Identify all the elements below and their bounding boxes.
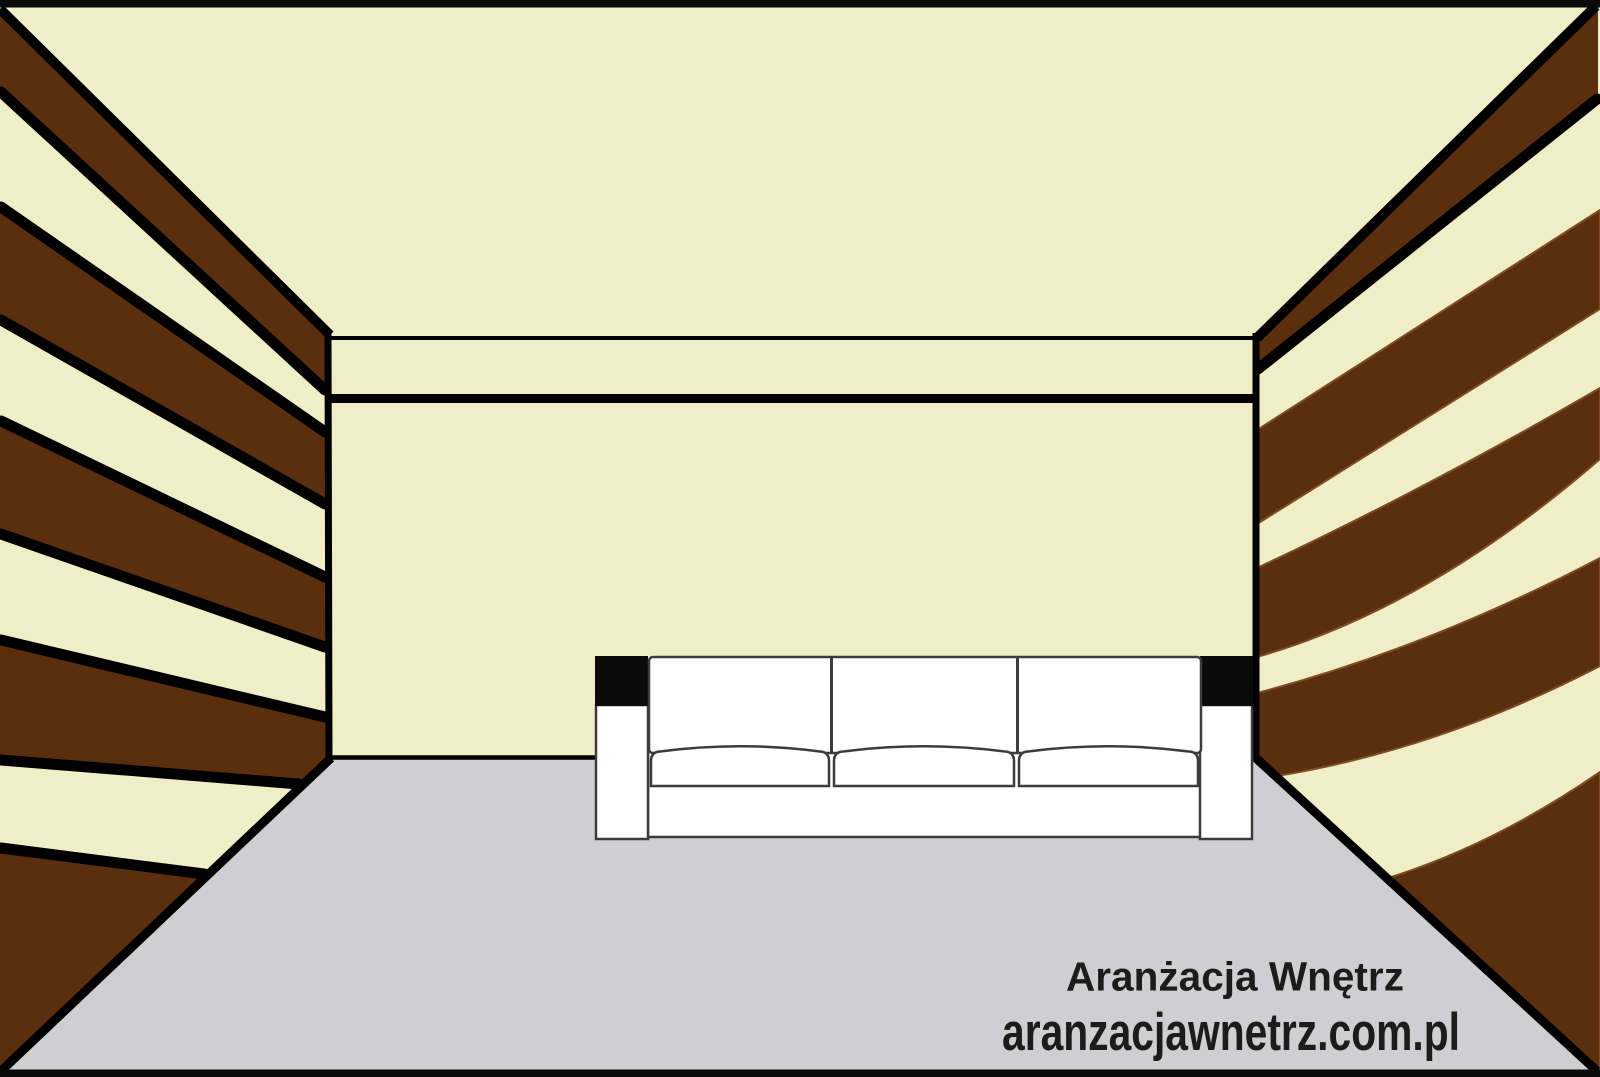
svg-text:aranzacjawnetrz.com.pl: aranzacjawnetrz.com.pl <box>1002 1003 1460 1062</box>
svg-text:Aranżacja Wnętrz: Aranżacja Wnętrz <box>1066 954 1404 1000</box>
